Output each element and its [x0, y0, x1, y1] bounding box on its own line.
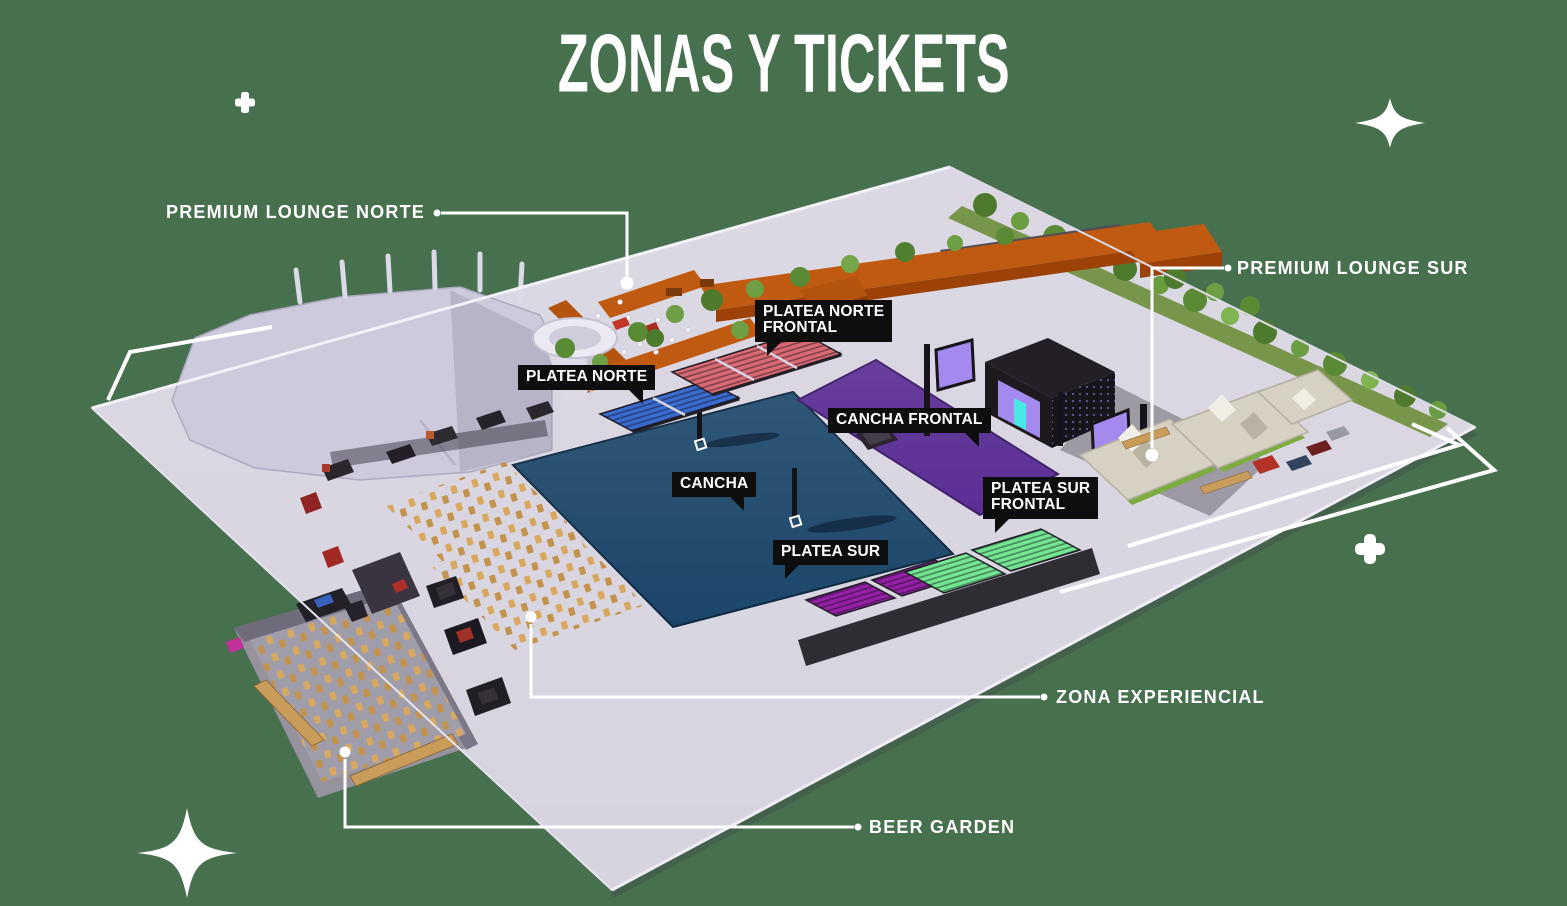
callout-premium-lounge-sur: PREMIUM LOUNGE SUR	[1237, 258, 1469, 279]
zone-label-platea-norte-frontal[interactable]: PLATEA NORTE FRONTAL	[755, 300, 892, 342]
venue-map: ZONAS Y TICKETS PLATEA NORTE FRONTAL PLA…	[0, 0, 1567, 906]
label-tail	[628, 389, 643, 404]
label-line: FRONTAL	[991, 497, 1090, 513]
label-line: CANCHA	[680, 476, 748, 492]
label-tail	[995, 518, 1010, 533]
label-tail	[964, 432, 979, 447]
label-line: FRONTAL	[763, 320, 884, 336]
label-line: CANCHA FRONTAL	[836, 412, 983, 428]
zone-label-platea-norte[interactable]: PLATEA NORTE	[518, 365, 655, 390]
venue-illustration	[0, 0, 1567, 906]
label-tail	[785, 564, 800, 579]
zone-label-platea-sur[interactable]: PLATEA SUR	[773, 540, 888, 565]
page-title: ZONAS Y TICKETS	[0, 16, 1567, 96]
callout-beer-garden: BEER GARDEN	[869, 817, 1015, 838]
label-line: PLATEA SUR	[991, 481, 1090, 497]
callout-zona-experiencial: ZONA EXPERIENCIAL	[1056, 687, 1265, 708]
callout-premium-lounge-norte: PREMIUM LOUNGE NORTE	[166, 202, 425, 223]
label-tail	[729, 496, 744, 511]
label-line: PLATEA NORTE	[526, 369, 647, 385]
label-tail	[767, 341, 782, 356]
label-line: PLATEA NORTE	[763, 304, 884, 320]
label-line: PLATEA SUR	[781, 544, 880, 560]
zone-label-cancha[interactable]: CANCHA	[672, 472, 756, 497]
zone-label-platea-sur-frontal[interactable]: PLATEA SUR FRONTAL	[983, 477, 1098, 519]
zone-label-cancha-frontal[interactable]: CANCHA FRONTAL	[828, 408, 991, 433]
